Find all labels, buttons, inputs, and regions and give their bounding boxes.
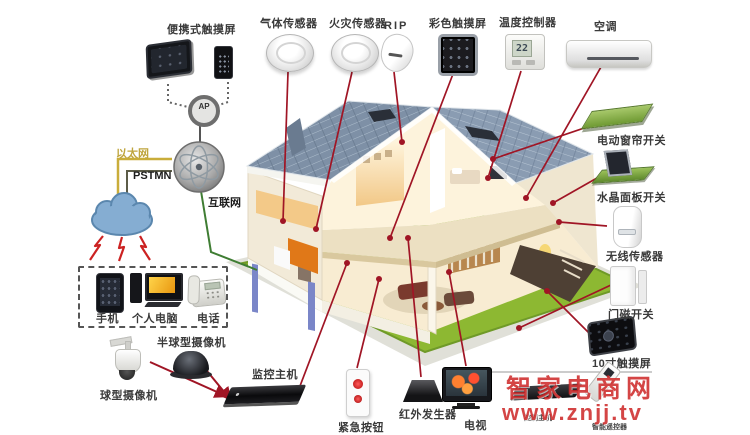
label-fire-sensor: 火灾传感器 xyxy=(329,15,387,31)
telephone-icon xyxy=(186,272,227,310)
cloud-icon xyxy=(92,193,152,235)
label-air-conditioner: 空调 xyxy=(594,18,617,34)
label-ball-camera: 球型摄像机 xyxy=(100,387,158,403)
personal-computer-icon xyxy=(130,271,184,309)
portable-tablet-icon xyxy=(146,39,193,80)
label-gas-sensor: 气体传感器 xyxy=(260,15,318,31)
temperature-display: 22 xyxy=(512,40,532,57)
ap-node-icon: AP xyxy=(188,95,220,127)
internet-globe-icon xyxy=(174,142,224,192)
air-conditioner-icon xyxy=(566,40,652,68)
crystal-panel-switch-icon xyxy=(596,150,650,186)
label-mobile-phone: 手机 xyxy=(96,310,119,326)
label-tv: 电视 xyxy=(464,417,487,433)
smart-home-diagram: AP 22 便携式触摸屏 气体传感器 火灾传感器 RIP 彩色触摸屏 温度控制器… xyxy=(0,0,750,435)
ball-camera-icon xyxy=(104,336,150,384)
label-color-touchscreen: 彩色触摸屏 xyxy=(429,15,487,31)
label-pir: RIP xyxy=(384,20,408,32)
label-portable-touchscreen: 便携式触摸屏 xyxy=(167,21,236,37)
label-telephone: 电话 xyxy=(197,310,220,326)
curtain-switch-icon xyxy=(584,102,650,132)
label-personal-computer: 个人电脑 xyxy=(132,310,178,326)
label-wireless-sensor: 无线传感器 xyxy=(606,248,664,264)
label-crystal-panel-switch: 水晶面板开关 xyxy=(597,189,666,205)
label-ethernet: 以太网 xyxy=(116,145,149,161)
label-pstn: PSTMN xyxy=(133,170,172,182)
wireless-sensor-icon xyxy=(613,206,642,248)
tv-icon xyxy=(442,367,492,411)
portable-remote-icon xyxy=(214,46,233,79)
temperature-controller-icon: 22 xyxy=(505,34,545,70)
watermark-brand: 智家电商网 xyxy=(506,377,656,402)
dome-camera-icon xyxy=(168,348,214,382)
watermark-url: www.znjj.tv xyxy=(502,402,643,424)
label-ir-generator: 红外发生器 xyxy=(399,406,457,422)
gas-sensor-icon xyxy=(266,34,314,72)
monitor-host-icon xyxy=(224,385,306,405)
emergency-button-icon xyxy=(346,369,370,417)
label-monitor-host: 监控主机 xyxy=(252,366,298,382)
label-curtain-switch: 电动窗帘开关 xyxy=(597,132,666,148)
label-temperature-controller: 温度控制器 xyxy=(499,14,557,30)
label-door-magnet-switch: 门磁开关 xyxy=(608,306,654,322)
fire-sensor-icon xyxy=(331,34,379,72)
label-emergency-button: 紧急按钮 xyxy=(338,419,384,435)
color-touchscreen-icon xyxy=(438,34,478,76)
label-dome-camera: 半球型摄像机 xyxy=(157,334,226,350)
door-magnet-icon xyxy=(610,264,648,306)
label-internet: 互联网 xyxy=(208,194,241,210)
mobile-phone-icon xyxy=(96,273,124,313)
wireless-lightning-arrows xyxy=(90,236,150,261)
